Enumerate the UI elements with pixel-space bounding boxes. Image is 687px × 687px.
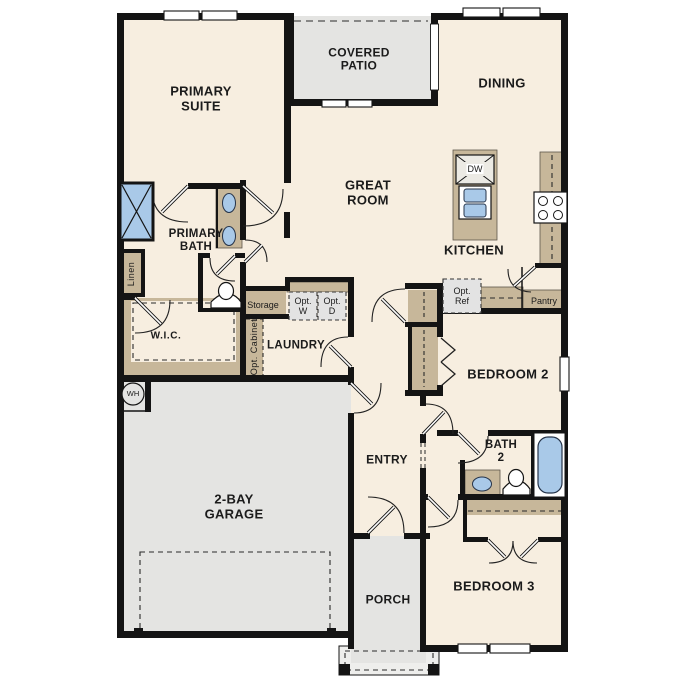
room-label-dining: DINING [478,77,525,92]
window [164,11,199,20]
range [534,192,567,223]
room-label-garage: 2-BAY GARAGE [193,492,275,521]
bedroom2-closet [412,327,438,390]
patio-side-opening [431,24,439,90]
label-opt-cabinet: Opt. Cabinet [249,319,259,376]
laundry-counter [287,282,351,292]
window [490,644,530,653]
room-label-bedroom3: BEDROOM 3 [453,580,534,595]
label-opt-washer: Opt. W [291,296,315,316]
room-label-primary-suite: PRIMARY SUITE [159,84,243,113]
room-label-covered-patio: COVERED PATIO [320,47,398,74]
label-pantry: Pantry [531,296,557,306]
island-sink [459,186,491,219]
shower [120,183,153,240]
sink [223,194,236,213]
floor-plan: PRIMARY SUITE COVERED PATIO DINING GREAT… [0,0,687,687]
window [202,11,237,20]
room-label-bedroom2: BEDROOM 2 [467,368,548,383]
label-storage: Storage [247,300,279,310]
room-label-bath2: BATH 2 [481,439,521,465]
bathtub [534,433,565,497]
cased-opening [420,443,426,468]
room-label-porch: PORCH [366,593,411,606]
room-label-laundry: LAUNDRY [267,340,325,353]
room-label-primary-bath: PRIMARY BATH [155,228,237,254]
room-label-entry: ENTRY [366,453,408,466]
label-dishwasher: DW [467,164,484,174]
patio-slider-panel [322,100,346,107]
bedroom3-closet-shelf [466,500,565,515]
room-label-wic: W.I.C. [151,330,182,341]
window [503,8,540,17]
window [463,8,500,17]
label-opt-ref: Opt. Ref [449,286,475,306]
label-linen: Linen [126,262,136,287]
room-label-kitchen: KITCHEN [444,244,504,259]
room-label-great-room: GREAT ROOM [333,178,403,207]
label-water-heater: WH [127,390,140,398]
floor-plan-graphic [0,0,687,687]
patio-slider-panel [348,100,372,107]
label-opt-dryer: Opt. D [320,296,344,316]
window [560,357,569,391]
window [458,644,487,653]
sink [473,477,492,491]
